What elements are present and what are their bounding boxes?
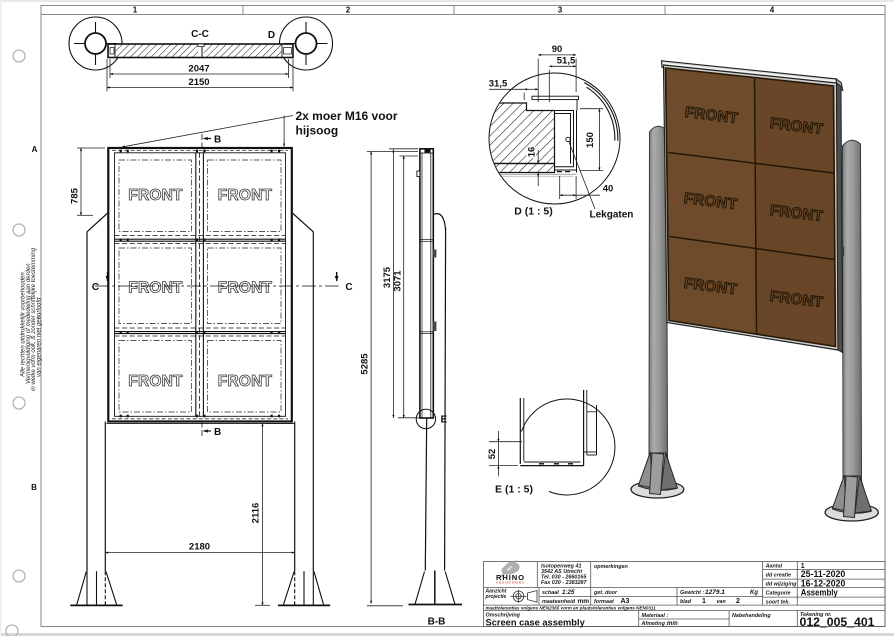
svg-text:1: 1 (133, 6, 138, 15)
svg-text:Assembly: Assembly (801, 588, 839, 599)
svg-text:2116: 2116 (251, 503, 262, 524)
svg-text:B: B (214, 135, 221, 146)
svg-text:Categorie: Categorie (766, 591, 791, 597)
svg-text:3175: 3175 (382, 266, 393, 288)
svg-text:get. door: get. door (593, 590, 618, 596)
svg-text:B: B (31, 483, 37, 492)
svg-text:projectie: projectie (485, 594, 507, 600)
svg-text:Nabehandeling: Nabehandeling (732, 613, 771, 619)
svg-text:012_005_401: 012_005_401 (800, 617, 876, 629)
svg-text:ENGINEERING: ENGINEERING (496, 581, 525, 585)
svg-text:FRONT: FRONT (128, 373, 183, 390)
svg-text:A: A (32, 145, 38, 154)
svg-text:B: B (214, 427, 221, 438)
svg-text:FRONT: FRONT (218, 373, 273, 390)
svg-text:Lekgaten: Lekgaten (590, 210, 634, 221)
svg-text:maateenheid: maateenheid (542, 599, 576, 605)
svg-text:mm: mm (578, 598, 590, 605)
svg-text:C: C (92, 282, 99, 293)
svg-text:2180: 2180 (189, 542, 210, 553)
svg-text:C: C (345, 282, 352, 293)
svg-text:Screen case assembly: Screen case assembly (486, 617, 586, 627)
svg-text:A3: A3 (621, 598, 630, 605)
svg-text:C-C: C-C (191, 29, 209, 40)
svg-text:3: 3 (558, 6, 563, 15)
svg-text:van eigenaren niet geoorloofd: van eigenaren niet geoorloofd (36, 297, 42, 377)
svg-text:FRONT: FRONT (218, 280, 273, 297)
svg-text:FRONT: FRONT (128, 280, 183, 297)
svg-text:Kg: Kg (750, 590, 758, 596)
svg-text:E (1 : 5): E (1 : 5) (495, 484, 533, 496)
svg-text:Fax 030 - 2383287: Fax 030 - 2383287 (541, 580, 588, 586)
svg-text:dd creatie: dd creatie (766, 573, 791, 579)
svg-text:Aantal: Aantal (765, 564, 783, 570)
svg-text:FRONT: FRONT (128, 187, 183, 204)
svg-text:blad: blad (680, 599, 692, 605)
svg-text:FRONT: FRONT (218, 187, 273, 204)
svg-text:Afmeting :: Afmeting : (641, 621, 669, 627)
svg-text:2150: 2150 (188, 77, 209, 88)
svg-text:Materiaal :: Materiaal : (642, 613, 669, 619)
svg-text:31,5: 31,5 (489, 79, 508, 90)
svg-text:1:25: 1:25 (562, 589, 575, 596)
svg-text:2: 2 (736, 598, 740, 605)
svg-text:150: 150 (585, 132, 596, 148)
svg-text:90: 90 (552, 44, 563, 55)
svg-text:maattoleranties volgens NEN236: maattoleranties volgens NEN2365 vorm en … (486, 606, 657, 611)
svg-text:5285: 5285 (360, 353, 371, 375)
svg-text:van: van (717, 599, 727, 605)
svg-text:Gewicht :: Gewicht : (680, 590, 704, 596)
svg-text:D: D (268, 30, 275, 41)
svg-text:2x moer M16 voor: 2x moer M16 voor (296, 109, 398, 123)
svg-text:1279.1: 1279.1 (705, 589, 725, 596)
svg-text:51,5: 51,5 (557, 56, 576, 67)
svg-text:E: E (441, 415, 448, 426)
svg-text:hijsoog: hijsoog (296, 124, 339, 138)
svg-text:785: 785 (70, 187, 81, 204)
svg-text:formaat: formaat (594, 599, 614, 605)
svg-text:52: 52 (487, 449, 498, 460)
svg-text:40: 40 (603, 184, 614, 195)
svg-text:dd wijziging: dd wijziging (766, 582, 798, 588)
svg-text:2: 2 (346, 6, 351, 15)
svg-text:opmerkingen: opmerkingen (594, 564, 629, 570)
svg-text:soort tek.: soort tek. (766, 600, 791, 606)
svg-text:mm: mm (667, 621, 678, 627)
svg-text:3071: 3071 (393, 270, 404, 292)
svg-text:16: 16 (527, 147, 538, 158)
svg-text:1: 1 (702, 598, 706, 605)
svg-text:2047: 2047 (188, 64, 209, 75)
svg-text:4: 4 (770, 6, 775, 15)
svg-text:D (1 : 5): D (1 : 5) (514, 206, 553, 218)
svg-text:B-B: B-B (428, 616, 446, 627)
svg-text:schaal: schaal (542, 590, 559, 596)
